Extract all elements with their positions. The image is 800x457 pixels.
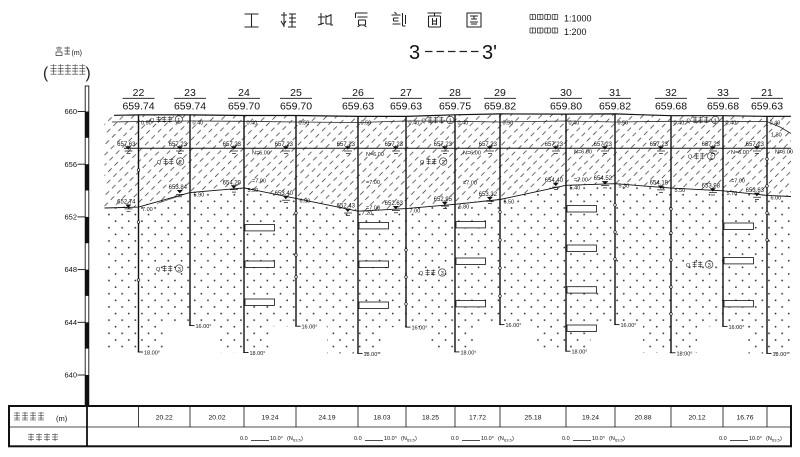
svg-text:Q: Q xyxy=(150,118,155,124)
svg-text:3: 3 xyxy=(708,263,711,269)
svg-text:N=6.00: N=6.00 xyxy=(366,152,384,158)
svg-text:659.82: 659.82 xyxy=(484,101,516,113)
svg-text:18.00°: 18.00° xyxy=(364,352,380,358)
svg-text:33: 33 xyxy=(717,87,729,99)
svg-text:0.0: 0.0 xyxy=(562,436,570,442)
svg-text:(N: (N xyxy=(287,436,293,442)
svg-text:): ) xyxy=(415,436,417,442)
svg-text:16.00°: 16.00° xyxy=(621,323,637,329)
svg-text:16.00°: 16.00° xyxy=(729,325,745,331)
svg-text:659.68: 659.68 xyxy=(655,101,687,113)
svg-text:Q: Q xyxy=(157,160,162,166)
svg-text:20.88: 20.88 xyxy=(634,415,651,422)
svg-text:7.20: 7.20 xyxy=(362,211,373,217)
svg-text:Q: Q xyxy=(686,263,691,269)
svg-text:16.00°: 16.00° xyxy=(412,326,428,332)
svg-text:1:1000: 1:1000 xyxy=(564,14,592,24)
svg-text:25: 25 xyxy=(290,87,302,99)
svg-text:1.30: 1.30 xyxy=(771,133,782,139)
svg-text:18.00°: 18.00° xyxy=(677,351,693,357)
svg-text:6.30: 6.30 xyxy=(300,198,311,204)
svg-text:Q: Q xyxy=(687,118,692,124)
svg-text:644: 644 xyxy=(64,318,77,327)
svg-text:2: 2 xyxy=(442,160,445,166)
svg-text:18.00°: 18.00° xyxy=(461,350,477,356)
svg-text:20.22: 20.22 xyxy=(156,415,173,422)
svg-text:0.50: 0.50 xyxy=(618,121,629,127)
svg-text:18.03: 18.03 xyxy=(373,415,390,422)
svg-text:659.63: 659.63 xyxy=(342,101,374,113)
svg-text:0.0: 0.0 xyxy=(354,436,362,442)
svg-text:19.24: 19.24 xyxy=(582,415,599,422)
svg-text:659.74: 659.74 xyxy=(122,101,154,113)
svg-text:N=6.00: N=6.00 xyxy=(775,150,793,156)
svg-text:(m): (m) xyxy=(72,50,83,57)
svg-text:25.18: 25.18 xyxy=(524,415,541,422)
svg-text:=7.00: =7.00 xyxy=(366,180,380,186)
svg-text:5.50: 5.50 xyxy=(675,188,686,194)
svg-text:Q: Q xyxy=(156,267,161,273)
svg-text:Q: Q xyxy=(420,160,425,166)
svg-text:0.40: 0.40 xyxy=(193,121,204,127)
svg-text:29: 29 xyxy=(494,87,506,99)
svg-text:): ) xyxy=(623,436,625,442)
svg-text:0.0: 0.0 xyxy=(240,436,248,442)
svg-text:16.00°: 16.00° xyxy=(302,325,318,331)
svg-text:16.00°: 16.00° xyxy=(506,323,522,329)
svg-text:7.00: 7.00 xyxy=(142,207,153,213)
svg-text:30: 30 xyxy=(560,87,572,99)
svg-text:17.72: 17.72 xyxy=(469,415,486,422)
svg-text:): ) xyxy=(86,65,91,82)
svg-text:22: 22 xyxy=(133,87,145,99)
svg-text:19.24: 19.24 xyxy=(261,415,278,422)
svg-text:0.40: 0.40 xyxy=(458,121,469,127)
svg-text:6.00: 6.00 xyxy=(771,195,782,201)
svg-text:3: 3 xyxy=(178,267,181,273)
svg-text:5.50: 5.50 xyxy=(248,188,259,194)
svg-text:10.0°: 10.0° xyxy=(270,436,283,442)
svg-text:18.00°: 18.00° xyxy=(250,351,266,357)
svg-text:5.40: 5.40 xyxy=(570,185,581,191)
svg-text:0.40: 0.40 xyxy=(247,121,258,127)
svg-text:(N: (N xyxy=(401,436,407,442)
svg-text:(m): (m) xyxy=(56,414,68,423)
svg-text:0.50: 0.50 xyxy=(361,121,372,127)
svg-text:6.80: 6.80 xyxy=(459,204,470,210)
svg-text:1:200: 1:200 xyxy=(564,27,587,37)
svg-text:3: 3 xyxy=(409,42,420,64)
svg-text:18.25: 18.25 xyxy=(422,415,439,422)
svg-text:=7.00: =7.00 xyxy=(252,179,266,185)
svg-text:Q: Q xyxy=(419,271,424,277)
svg-text:2: 2 xyxy=(179,160,182,166)
svg-text:5.30: 5.30 xyxy=(619,184,630,190)
svg-text:659.68: 659.68 xyxy=(707,101,739,113)
svg-text:0.40: 0.40 xyxy=(726,121,737,127)
svg-text:(N: (N xyxy=(498,436,504,442)
svg-text:23: 23 xyxy=(184,87,196,99)
svg-text:N=6.00: N=6.00 xyxy=(574,150,592,156)
svg-text:10.0°: 10.0° xyxy=(481,436,494,442)
svg-text:28: 28 xyxy=(449,87,461,99)
svg-text:659.82: 659.82 xyxy=(599,101,631,113)
svg-text:659.63: 659.63 xyxy=(751,101,783,113)
svg-text:26: 26 xyxy=(352,87,364,99)
svg-text:24.19: 24.19 xyxy=(318,415,335,422)
svg-text:18.00°: 18.00° xyxy=(773,352,789,358)
svg-text:648: 648 xyxy=(64,265,77,274)
svg-text:656: 656 xyxy=(64,160,77,169)
svg-text:6.50: 6.50 xyxy=(504,200,515,206)
svg-text:=7.00: =7.00 xyxy=(731,179,745,185)
svg-text:N=6.00: N=6.00 xyxy=(731,150,749,156)
svg-text:1: 1 xyxy=(449,118,452,124)
svg-text:18.00°: 18.00° xyxy=(144,351,160,357)
svg-text:31: 31 xyxy=(609,87,621,99)
svg-text:21: 21 xyxy=(761,87,773,99)
svg-text:659.74: 659.74 xyxy=(174,101,206,113)
svg-text:1: 1 xyxy=(177,118,180,124)
svg-text:=7.00: =7.00 xyxy=(463,181,477,187)
svg-text:0.40: 0.40 xyxy=(569,121,580,127)
svg-text:): ) xyxy=(780,436,782,442)
svg-text:652: 652 xyxy=(64,213,77,222)
svg-text:0.40: 0.40 xyxy=(770,121,781,127)
svg-text:27: 27 xyxy=(400,87,412,99)
svg-text:20.02: 20.02 xyxy=(208,415,225,422)
svg-text:0.40: 0.40 xyxy=(409,121,420,127)
svg-text:16.76: 16.76 xyxy=(736,415,753,422)
svg-text:0.0: 0.0 xyxy=(719,436,727,442)
svg-text:0.50: 0.50 xyxy=(503,121,514,127)
svg-text:Q: Q xyxy=(688,154,693,160)
svg-text:20.12: 20.12 xyxy=(688,415,705,422)
svg-text:659.63: 659.63 xyxy=(390,101,422,113)
svg-text:(: ( xyxy=(43,65,49,82)
svg-text:10.0°: 10.0° xyxy=(749,436,762,442)
svg-text:659.75: 659.75 xyxy=(439,101,471,113)
svg-text:Q: Q xyxy=(422,118,427,124)
svg-text:18.00°: 18.00° xyxy=(572,350,588,356)
svg-text:5.90: 5.90 xyxy=(194,193,205,199)
svg-text:640: 640 xyxy=(64,371,77,380)
svg-text:659.70: 659.70 xyxy=(280,101,312,113)
svg-text:1: 1 xyxy=(714,118,717,124)
svg-text:32: 32 xyxy=(665,87,677,99)
svg-text:3': 3' xyxy=(482,42,497,64)
svg-text:16.00°: 16.00° xyxy=(196,324,212,330)
svg-text:7.00: 7.00 xyxy=(410,209,421,215)
svg-text:660: 660 xyxy=(64,107,77,116)
svg-text:0.50: 0.50 xyxy=(299,121,310,127)
svg-text:24: 24 xyxy=(238,87,250,99)
svg-text:0.0: 0.0 xyxy=(451,436,459,442)
svg-text:0.40: 0.40 xyxy=(674,121,685,127)
svg-text:N=6.00: N=6.00 xyxy=(252,151,270,157)
svg-text:=7.00: =7.00 xyxy=(574,178,588,184)
svg-text:5.70: 5.70 xyxy=(727,191,738,197)
svg-text:): ) xyxy=(512,436,514,442)
svg-text:(N: (N xyxy=(766,436,772,442)
svg-text:10.0°: 10.0° xyxy=(384,436,397,442)
svg-text:2: 2 xyxy=(710,154,713,160)
svg-text:659.70: 659.70 xyxy=(228,101,260,113)
svg-text:659.80: 659.80 xyxy=(550,101,582,113)
svg-text:N=6.00: N=6.00 xyxy=(463,151,481,157)
svg-text:(N: (N xyxy=(609,436,615,442)
svg-text:): ) xyxy=(301,436,303,442)
svg-text:=7.00: =7.00 xyxy=(366,206,380,212)
svg-text:3: 3 xyxy=(441,271,444,277)
svg-text:10.0°: 10.0° xyxy=(592,436,605,442)
